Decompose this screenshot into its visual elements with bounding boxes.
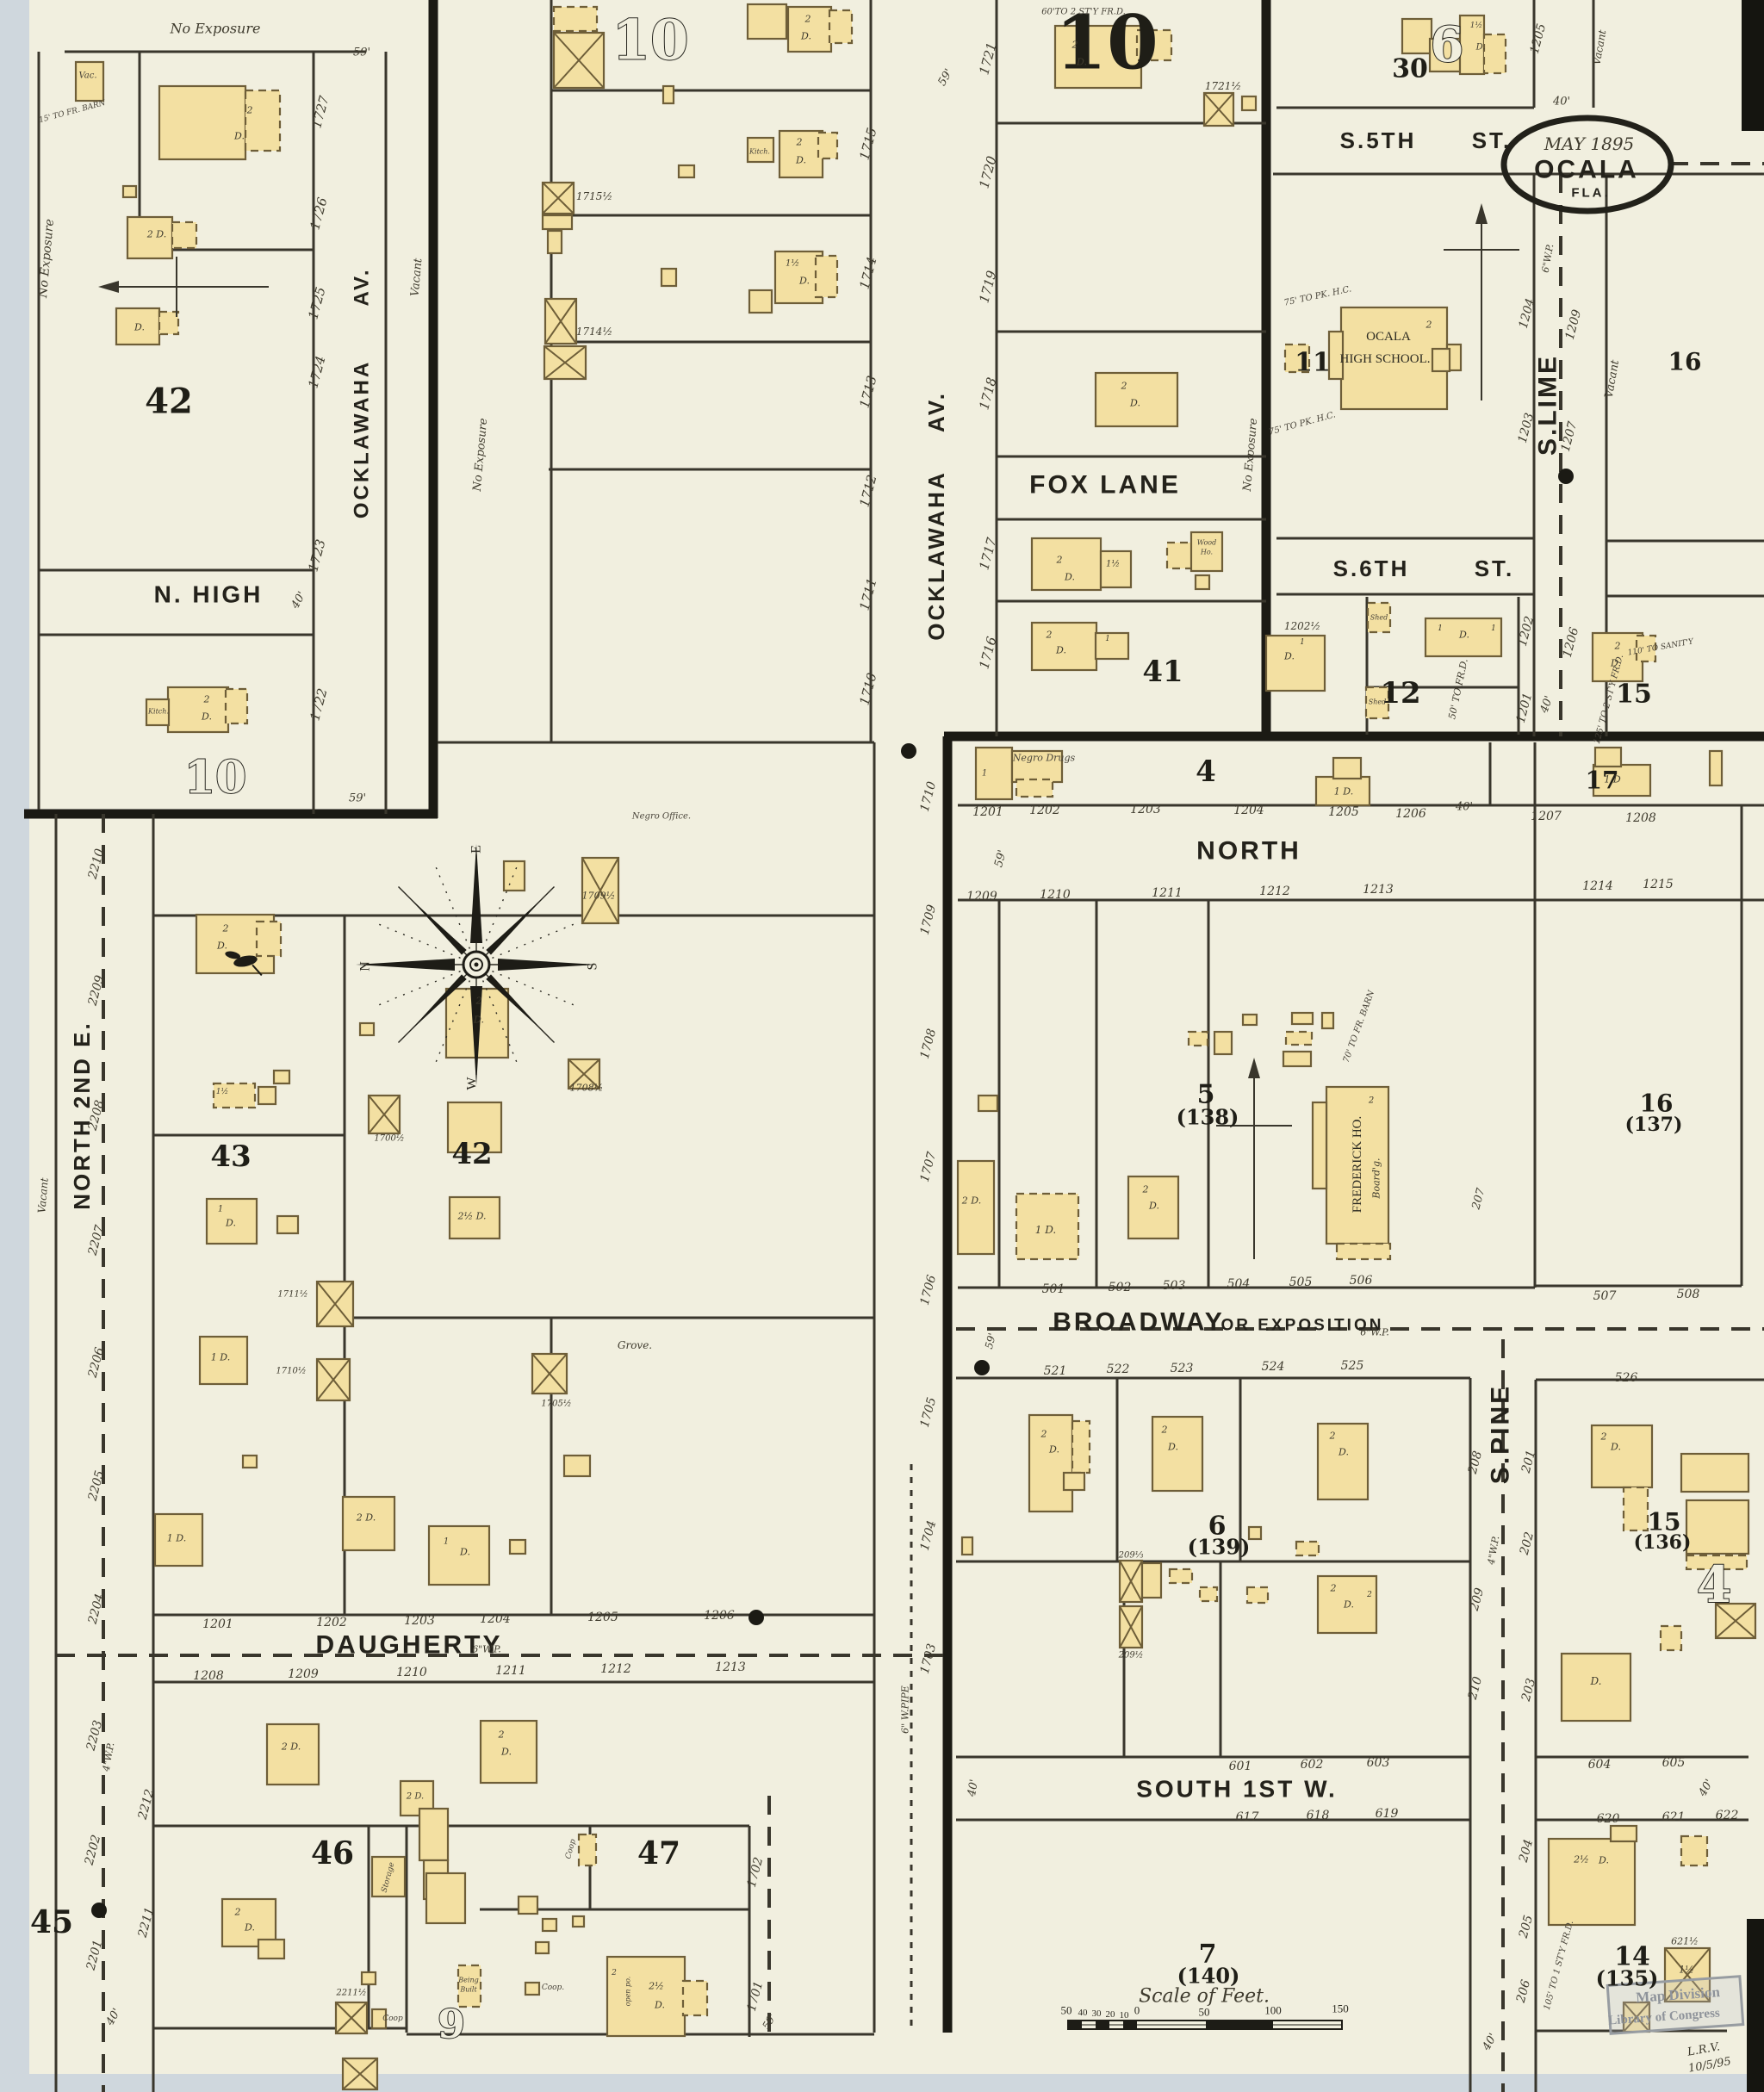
building-footprint: [1189, 1032, 1208, 1046]
building-footprint: [1661, 1626, 1681, 1650]
house-number: 1 D.: [211, 1352, 230, 1363]
house-number: 2: [222, 923, 229, 934]
house-number: 2: [1040, 1429, 1047, 1440]
building-footprint: [1549, 1839, 1635, 1925]
house-number: 1209: [288, 1667, 319, 1681]
compass-letter: E: [469, 845, 484, 854]
annotation: Ho.: [1200, 549, 1213, 556]
city-name: OCALA: [1366, 330, 1411, 344]
house-number: 1208: [1625, 811, 1656, 825]
building-footprint: [1016, 779, 1053, 797]
house-number: 2: [1056, 555, 1063, 566]
annotation: Negro Drugs: [1012, 753, 1076, 764]
house-number: 601: [1229, 1760, 1252, 1773]
building-footprint: [1170, 1569, 1192, 1583]
building-footprint: [1072, 1421, 1090, 1473]
annotation: Grove.: [618, 1339, 652, 1351]
house-number: 1714½: [576, 326, 612, 338]
compass-hub-dot: [475, 963, 479, 967]
building-footprint: [548, 231, 562, 253]
block-number: (139): [1188, 1535, 1251, 1560]
street-label: OCKLAWAHA: [351, 360, 374, 518]
annotation: Negro Office.: [631, 812, 691, 822]
block-number: (135): [1596, 1966, 1659, 1991]
street-label: FOX LANE: [1029, 471, 1181, 500]
house-number: 1203: [404, 1614, 435, 1628]
house-number: 59': [349, 792, 366, 805]
house-number: 1213: [715, 1661, 746, 1674]
block-number: (136): [1634, 1531, 1692, 1554]
house-number: 618: [1307, 1809, 1330, 1822]
house-number: 2: [1161, 1425, 1168, 1436]
house-number: 605: [1662, 1756, 1686, 1770]
block-number: 12: [1380, 676, 1420, 711]
house-number: 2 D.: [961, 1195, 981, 1207]
house-number: 2½: [1573, 1854, 1589, 1865]
block-number: (137): [1625, 1114, 1683, 1136]
annotation: D.: [1283, 651, 1295, 662]
annotation: D.: [201, 711, 212, 723]
house-number: 1: [1300, 638, 1305, 647]
building-footprint: [426, 1873, 465, 1923]
annotation: D.: [1610, 658, 1621, 669]
house-number: 2: [498, 1729, 505, 1741]
annotation: D.: [795, 155, 806, 166]
house-number: 619: [1376, 1807, 1399, 1821]
street-label: AV.: [923, 391, 949, 432]
house-number: 1206: [704, 1609, 735, 1623]
house-number: 30: [1092, 2008, 1102, 2019]
house-number: 150: [1332, 2002, 1349, 2015]
house-number: 0: [1134, 2004, 1140, 2017]
block-number: (138): [1177, 1105, 1239, 1130]
house-number: 622: [1716, 1809, 1739, 1822]
building-footprint: [1200, 1587, 1217, 1601]
house-number: 1 D.: [167, 1533, 186, 1544]
house-number: 2: [1121, 381, 1127, 392]
annotation: D.: [1458, 630, 1469, 641]
block-number: 47: [637, 1835, 680, 1872]
building-footprint: [1686, 1500, 1748, 1554]
building-footprint: [579, 1834, 596, 1865]
annotation: Coop: [382, 2014, 403, 2023]
building-footprint: [1624, 1487, 1648, 1530]
street-label: OCKLAWAHA: [923, 470, 949, 640]
house-number: 1211: [1152, 886, 1183, 900]
house-number: 100: [1264, 2004, 1282, 2017]
building-footprint: [1142, 1563, 1161, 1598]
house-number: 501: [1042, 1282, 1065, 1296]
building-footprint: [429, 1526, 489, 1585]
house-number: 2: [1071, 40, 1078, 51]
house-number: 2: [1330, 1583, 1337, 1594]
house-number: 503: [1163, 1279, 1186, 1293]
building-footprint: [1595, 748, 1621, 767]
building-footprint: [1152, 1417, 1202, 1491]
annotation: Shed: [1369, 698, 1387, 706]
building-footprint: [1710, 751, 1722, 785]
building-footprint: [661, 269, 676, 286]
house-number: 1209: [966, 890, 997, 903]
house-number: 10: [1120, 2010, 1130, 2021]
building-footprint: [258, 1087, 276, 1104]
house-number: 1708½: [570, 1083, 604, 1094]
annotation: Being: [457, 1977, 478, 1984]
annotation: Wood: [1197, 539, 1216, 547]
house-number: 20: [1106, 2009, 1116, 2020]
annotation: Vac.: [78, 71, 96, 81]
house-number: 617: [1236, 1810, 1259, 1824]
house-number: 523: [1171, 1362, 1194, 1375]
building-footprint: [1484, 34, 1506, 73]
building-footprint: [554, 7, 597, 31]
building-footprint: [1296, 1542, 1319, 1555]
building-footprint: [1249, 1527, 1261, 1539]
annotation: D.: [800, 31, 811, 42]
building-footprint: [362, 1972, 376, 1984]
block-number: 4: [1196, 754, 1216, 789]
house-number: 506: [1350, 1274, 1373, 1288]
house-number: 40': [1552, 96, 1570, 109]
adjacent-sheet-block-number: 10: [184, 752, 246, 804]
building-footprint: [1292, 1013, 1313, 1024]
house-number: 209⅓: [1118, 1551, 1144, 1561]
building-footprint: [1266, 636, 1325, 691]
building-footprint: [978, 1096, 997, 1111]
annotation: HIGH SCHOOL.: [1340, 352, 1431, 366]
annotation: D.: [244, 1922, 255, 1934]
water-main-dot: [1558, 469, 1574, 484]
building-footprint: [1214, 1032, 1232, 1054]
building-footprint: [573, 1916, 584, 1927]
house-number: 1211: [495, 1664, 526, 1678]
house-number: 2: [1600, 1431, 1607, 1443]
block-number: 42: [145, 382, 193, 422]
building-footprint: [510, 1540, 525, 1554]
house-number: 6"W.P.: [1360, 1327, 1389, 1338]
house-number: 1206: [1395, 807, 1426, 821]
annotation: open po.: [624, 1977, 632, 2007]
house-number: 1210: [396, 1666, 427, 1679]
block-number: (140): [1177, 1964, 1240, 1989]
building-footprint: [816, 256, 837, 297]
building-footprint: [1242, 96, 1256, 110]
house-number: 1705½: [541, 1400, 571, 1409]
house-number: 507: [1593, 1289, 1617, 1303]
house-number: 508: [1677, 1288, 1700, 1301]
house-number: 621½: [1671, 1936, 1699, 1947]
water-main-dot: [91, 1903, 107, 1918]
house-number: 1½: [1470, 21, 1482, 30]
block-number: 43: [210, 1139, 251, 1174]
block-number: 16: [1668, 348, 1702, 376]
street-label: OR EXPOSITION: [1221, 1317, 1384, 1335]
compass-letter: W: [465, 1077, 480, 1090]
house-number: 2½: [648, 1981, 664, 1992]
annotation: D.: [473, 1015, 484, 1026]
block-number: 42: [451, 1137, 492, 1171]
house-number: 2 D.: [281, 1741, 301, 1753]
building-footprint: [168, 687, 228, 732]
sanborn-map-canvas: 10MAY 1895OCALAFLA.S.5THST.S.6THST.FOX L…: [0, 0, 1764, 2092]
house-number: 1½: [1679, 1965, 1694, 1976]
annotation: D.: [1343, 1599, 1354, 1611]
annotation: D.: [1048, 1444, 1059, 1456]
annotation: D.: [225, 1218, 236, 1229]
house-number: 1: [218, 1205, 223, 1214]
compass-letter: S: [586, 963, 600, 971]
house-number: 1208: [193, 1669, 224, 1683]
scale-label: Scale of Feet.: [1139, 1986, 1270, 2008]
house-number: 1210: [1040, 888, 1071, 902]
block-number: 11: [1295, 348, 1331, 378]
annotation: Kitch.: [147, 708, 169, 716]
street-label: BROADWAY: [1053, 1308, 1225, 1337]
annotation: D.: [500, 1747, 512, 1758]
adjacent-sheet-block-number: 4: [1697, 1555, 1731, 1614]
house-number: 1: [1491, 624, 1496, 633]
building-footprint: [1196, 575, 1209, 589]
annotation: D.: [1064, 572, 1075, 583]
house-number: 50: [1199, 2006, 1210, 2019]
street-label: NORTH: [1196, 837, 1301, 866]
house-number: 50: [1061, 2004, 1072, 2017]
water-main-dot: [974, 1360, 990, 1375]
annotation: No Exposure: [170, 21, 261, 37]
house-number: 1212: [1259, 885, 1290, 898]
adjacent-sheet-block-number: 9: [438, 2001, 465, 2047]
house-number: 1721½: [1205, 80, 1241, 92]
house-number: 1213: [1363, 883, 1394, 897]
water-main-dot: [901, 743, 916, 759]
house-number: 1203: [1130, 803, 1161, 816]
house-number: 209½: [1118, 1651, 1144, 1661]
house-number: 2: [234, 1907, 241, 1918]
annotation: Coop.: [542, 1983, 564, 1992]
building-footprint: [343, 1497, 394, 1550]
city-name: OCALA: [1534, 156, 1639, 184]
building-footprint: [277, 1216, 298, 1233]
scale-bar: [1068, 2021, 1342, 2029]
building-footprint: [748, 4, 786, 39]
building-footprint: [1322, 1013, 1333, 1028]
annotation: D.: [1055, 645, 1066, 656]
map-date: MAY 1895: [1543, 133, 1635, 154]
house-number: 1204: [480, 1612, 511, 1626]
building-footprint: [159, 86, 245, 159]
building-footprint: [1064, 1473, 1084, 1490]
building-footprint: [958, 1161, 994, 1254]
house-number: 1205: [1328, 805, 1359, 819]
building-footprint: [1402, 19, 1432, 53]
building-footprint: [1333, 758, 1361, 779]
house-number: 1202: [316, 1616, 347, 1630]
building-footprint: [245, 90, 280, 151]
house-number: 602: [1301, 1758, 1324, 1772]
house-number: 1202: [1029, 804, 1060, 817]
street-label: S.LIME: [1534, 354, 1562, 456]
house-number: 2: [1046, 630, 1053, 641]
page-edge-bottom: [0, 2074, 1764, 2092]
house-number: 2 D.: [356, 1512, 376, 1524]
building-footprint: [504, 861, 525, 891]
building-footprint: [274, 1071, 289, 1083]
block-number: 45: [30, 1904, 73, 1940]
building-footprint: [226, 689, 247, 723]
street-label: S.6TH: [1333, 556, 1410, 581]
house-number: 524: [1262, 1360, 1285, 1374]
house-number: 1709½: [582, 891, 616, 902]
building-footprint: [123, 186, 136, 197]
building-footprint: [1243, 1015, 1257, 1025]
building-footprint: [1096, 633, 1128, 659]
house-number: 1: [1105, 635, 1110, 643]
building-footprint: [1167, 543, 1193, 568]
house-number: 522: [1107, 1363, 1130, 1376]
annotation: D.: [654, 2000, 665, 2011]
annotation: D.: [1076, 57, 1087, 68]
house-number: 6"W.P.: [472, 1644, 501, 1655]
building-footprint: [1029, 1415, 1072, 1512]
house-number: 2: [203, 694, 210, 705]
sanborn-map-page: 10MAY 1895OCALAFLA.S.5THST.S.6THST.FOX L…: [0, 0, 1764, 2092]
house-number: 502: [1109, 1281, 1132, 1294]
adjacent-sheet-block-number: 6: [1431, 16, 1464, 73]
building-footprint: [543, 215, 572, 229]
street-label: S.PINE: [1487, 1384, 1515, 1484]
annotation: D.: [216, 940, 227, 952]
house-number: 1205: [587, 1611, 618, 1624]
house-number: 6" W.PIPE: [900, 1685, 911, 1734]
house-number: 525: [1341, 1359, 1364, 1373]
building-footprint: [683, 1981, 707, 2015]
house-number: 1: [444, 1537, 449, 1547]
house-number: 621: [1662, 1810, 1686, 1824]
house-number: 2211½: [335, 1989, 366, 1998]
house-number: 1204: [1233, 804, 1264, 817]
annotation: D.: [459, 1547, 470, 1558]
annotation: D.: [1598, 1855, 1609, 1866]
water-main-dot: [748, 1610, 764, 1625]
building-footprint: [1432, 349, 1450, 371]
annotation: Board'g.: [1371, 1158, 1382, 1199]
building-footprint: [258, 1940, 284, 1959]
building-footprint: [76, 62, 103, 101]
house-number: 521: [1044, 1364, 1067, 1378]
house-number: 2 D.: [146, 229, 166, 240]
house-number: 2: [246, 105, 253, 116]
house-number: 505: [1289, 1276, 1313, 1289]
house-number: 1700½: [374, 1134, 404, 1144]
house-number: 2: [1425, 320, 1432, 331]
annotation: D.: [233, 131, 245, 142]
house-number: 59': [353, 47, 370, 59]
house-number: 2: [1142, 1184, 1149, 1195]
building-footprint: [1681, 1836, 1707, 1865]
house-number: 1½: [216, 1087, 228, 1096]
building-footprint: [243, 1456, 257, 1468]
building-footprint: [519, 1896, 537, 1914]
building-footprint: [679, 165, 694, 177]
house-number: 1201: [972, 805, 1003, 819]
house-number: 1202½: [1284, 620, 1320, 632]
building-footprint: [1318, 1424, 1368, 1499]
annotation: D.: [134, 322, 145, 333]
house-number: 60'TO 2 ST'Y FR.D.: [1041, 8, 1126, 17]
house-number: 2½ D.: [457, 1211, 486, 1222]
house-number: 620: [1597, 1812, 1620, 1826]
building-footprint: [1681, 1454, 1748, 1492]
house-number: 604: [1588, 1758, 1612, 1772]
building-footprint: [607, 1957, 685, 2036]
house-number: 40: [1078, 2008, 1089, 2018]
page-corner-black: [1742, 0, 1764, 131]
house-number: 504: [1227, 1277, 1251, 1291]
building-footprint: [1247, 1587, 1268, 1603]
building-footprint: [257, 922, 281, 956]
building-footprint: [1313, 1102, 1326, 1189]
house-number: 2: [804, 14, 811, 25]
building-footprint: [663, 86, 674, 103]
building-footprint: [536, 1942, 549, 1953]
annotation: D.: [1589, 1675, 1601, 1687]
house-number: 603: [1367, 1756, 1390, 1770]
house-number: 1212: [600, 1662, 631, 1676]
annotation: D.: [1338, 1447, 1349, 1458]
house-number: 1: [1438, 624, 1443, 633]
house-number: 2: [611, 1969, 617, 1977]
block-number: 30: [1392, 54, 1428, 84]
house-number: 2 D.: [406, 1792, 424, 1802]
adjacent-sheet-block-number: 10: [612, 9, 688, 73]
building-footprint: [543, 1919, 556, 1931]
house-number: 1215: [1643, 878, 1674, 891]
house-number: 1710½: [276, 1367, 306, 1376]
state-name: FLA.: [1571, 186, 1610, 201]
house-number: 2: [1368, 1096, 1374, 1106]
street-label: SOUTH 1ST W.: [1136, 1776, 1338, 1803]
building-footprint: [419, 1809, 448, 1860]
house-number: 1½: [1106, 560, 1120, 569]
building-footprint: [749, 290, 772, 313]
house-number: 1715½: [576, 190, 612, 202]
house-number: 526: [1615, 1371, 1638, 1385]
house-number: 1214: [1582, 879, 1613, 893]
house-number: 40': [1455, 801, 1473, 814]
street-label: ST.: [1475, 556, 1515, 581]
building-footprint: [159, 312, 178, 334]
annotation: D.: [1167, 1442, 1178, 1453]
annotation: Kitch.: [748, 148, 770, 156]
page-corner-black: [1747, 1919, 1764, 2092]
building-footprint: [360, 1023, 374, 1035]
house-number: 2: [475, 996, 482, 1007]
house-number: 2: [796, 137, 803, 148]
building-footprint: [818, 133, 837, 158]
house-number: 1207: [1531, 810, 1562, 823]
block-number: 15: [1616, 680, 1652, 710]
building-footprint: [564, 1456, 590, 1476]
street-label: N. HIGH: [154, 581, 264, 608]
house-number: 2: [1329, 1431, 1336, 1442]
house-number: 1201: [202, 1617, 233, 1631]
house-number: 1 D.: [1035, 1224, 1056, 1236]
house-number: 1: [982, 769, 987, 779]
building-footprint: [1337, 1244, 1390, 1259]
building-footprint: [1611, 1826, 1637, 1841]
compass-letter: N: [358, 961, 373, 972]
block-number: 46: [311, 1835, 354, 1872]
